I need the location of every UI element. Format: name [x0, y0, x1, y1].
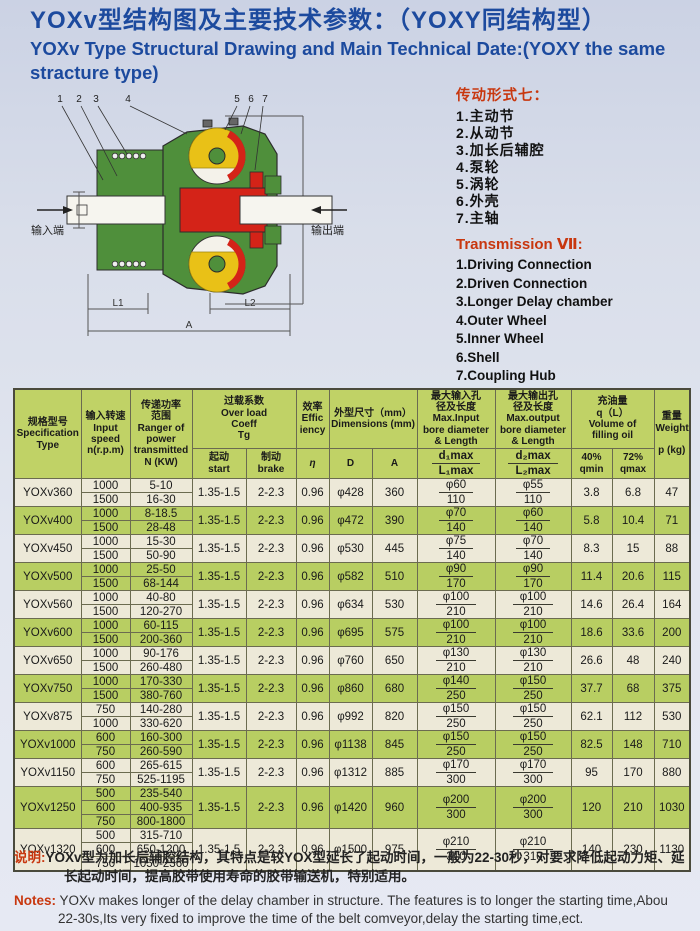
- table-cell: YOXv1150: [14, 759, 81, 787]
- table-cell: φ140250: [417, 675, 495, 703]
- table-cell: YOXv450: [14, 535, 81, 563]
- callout-7: 7: [262, 94, 268, 105]
- table-cell: 88: [654, 535, 690, 563]
- table-cell: φ150250: [495, 703, 571, 731]
- table-cell: 1500: [81, 689, 130, 703]
- table-cell: 47: [654, 479, 690, 507]
- table-row: YOXv1150600265-6151.35-1.52-2.30.96φ1312…: [14, 759, 690, 773]
- pump-core-top: [209, 148, 225, 164]
- col-header-a: A: [372, 449, 417, 479]
- table-cell: 112: [612, 703, 654, 731]
- col-header-overload: 过载系数 Over load Coeff Tg: [192, 389, 296, 449]
- table-cell: 750: [81, 703, 130, 717]
- page-header: YOXv型结构图及主要技术参数：（YOXY同结构型） YOXv Type Str…: [30, 6, 700, 85]
- table-cell: 50-90: [130, 549, 192, 563]
- table-cell: 380-760: [130, 689, 192, 703]
- table-cell: 0.96: [296, 507, 329, 535]
- callout-3: 3: [93, 94, 99, 105]
- table-cell: 260-590: [130, 745, 192, 759]
- table-cell: 115: [654, 563, 690, 591]
- table-cell: 1500: [81, 605, 130, 619]
- table-cell: 600: [81, 759, 130, 773]
- table-cell: 200: [654, 619, 690, 647]
- legend-item: 6.外壳: [456, 193, 696, 210]
- table-cell: 1.35-1.5: [192, 675, 246, 703]
- callout-2: 2: [76, 94, 82, 105]
- table-cell: φ1312: [329, 759, 372, 787]
- table-cell: 1000: [81, 647, 130, 661]
- hub-link-bottom: [250, 232, 263, 248]
- table-cell: 95: [571, 759, 612, 787]
- table-cell: φ90170: [495, 563, 571, 591]
- table-cell: 1030: [654, 787, 690, 829]
- note-en-label: Notes:: [14, 893, 56, 908]
- table-cell: 1500: [81, 633, 130, 647]
- table-cell: 164: [654, 591, 690, 619]
- output-end-label: 输出端: [311, 223, 344, 237]
- note-en-text: YOXv makes longer of the delay chamber i…: [58, 893, 668, 926]
- spec-table-body: YOXv36010005-101.35-1.52-2.30.96φ428360φ…: [14, 479, 690, 872]
- table-cell: φ55110: [495, 479, 571, 507]
- table-row: YOXv600100060-1151.35-1.52-2.30.96φ69557…: [14, 619, 690, 633]
- table-cell: 315-710: [130, 829, 192, 843]
- legend-item: 4.泵轮: [456, 159, 696, 176]
- table-row: YOXv450100015-301.35-1.52-2.30.96φ530445…: [14, 535, 690, 549]
- col-header-eta: η: [296, 449, 329, 479]
- table-cell: 2-2.3: [246, 675, 296, 703]
- table-cell: 5-10: [130, 479, 192, 493]
- pump-core-bottom: [209, 256, 225, 272]
- table-cell: φ100210: [417, 591, 495, 619]
- table-cell: 3.8: [571, 479, 612, 507]
- table-cell: φ75140: [417, 535, 495, 563]
- table-cell: φ150250: [495, 675, 571, 703]
- table-cell: φ100210: [495, 619, 571, 647]
- col-header-d1max: d₁maxL₁max: [417, 449, 495, 479]
- table-cell: 2-2.3: [246, 759, 296, 787]
- table-cell: 2-2.3: [246, 563, 296, 591]
- table-cell: φ428: [329, 479, 372, 507]
- table-cell: φ582: [329, 563, 372, 591]
- table-cell: 15: [612, 535, 654, 563]
- table-cell: 200-360: [130, 633, 192, 647]
- table-cell: 0.96: [296, 647, 329, 675]
- table-cell: 0.96: [296, 731, 329, 759]
- table-row: YOXv7501000170-3301.35-1.52-2.30.96φ8606…: [14, 675, 690, 689]
- table-cell: φ695: [329, 619, 372, 647]
- table-cell: 8-18.5: [130, 507, 192, 521]
- hub-link-top: [250, 172, 263, 188]
- spec-table: 规格型号 Specification Type 输入转速 Input speed…: [13, 388, 691, 872]
- table-cell: 40-80: [130, 591, 192, 605]
- table-cell: 530: [654, 703, 690, 731]
- table-cell: φ860: [329, 675, 372, 703]
- table-cell: 8.3: [571, 535, 612, 563]
- table-row: YOXv500100025-501.35-1.52-2.30.96φ582510…: [14, 563, 690, 577]
- table-cell: 28-48: [130, 521, 192, 535]
- table-cell: 2-2.3: [246, 703, 296, 731]
- table-cell: 1.35-1.5: [192, 759, 246, 787]
- table-cell: 18.6: [571, 619, 612, 647]
- table-cell: 1.35-1.5: [192, 563, 246, 591]
- legend-item: 1.主动节: [456, 108, 696, 125]
- input-end-label: 输入端: [31, 223, 64, 237]
- table-cell: φ150250: [417, 731, 495, 759]
- table-cell: 2-2.3: [246, 731, 296, 759]
- table-cell: φ760: [329, 647, 372, 675]
- table-cell: 25-50: [130, 563, 192, 577]
- table-cell: 2-2.3: [246, 507, 296, 535]
- table-cell: 500: [81, 787, 130, 801]
- table-cell: 33.6: [612, 619, 654, 647]
- legend-list-en: 1.Driving Connection 2.Driven Connection…: [456, 256, 696, 386]
- table-cell: 2-2.3: [246, 647, 296, 675]
- table-cell: 170-330: [130, 675, 192, 689]
- table-cell: 375: [654, 675, 690, 703]
- table-cell: YOXv1000: [14, 731, 81, 759]
- table-row: YOXv40010008-18.51.35-1.52-2.30.96φ47239…: [14, 507, 690, 521]
- col-header-qmin: 40% qmin: [571, 449, 612, 479]
- note-zh-label: 说明:: [14, 850, 46, 865]
- table-cell: 0.96: [296, 787, 329, 829]
- table-cell: φ200300: [417, 787, 495, 829]
- table-cell: 148: [612, 731, 654, 759]
- table-cell: 235-540: [130, 787, 192, 801]
- table-cell: 1.35-1.5: [192, 703, 246, 731]
- table-cell: 15-30: [130, 535, 192, 549]
- table-cell: 71: [654, 507, 690, 535]
- table-cell: 0.96: [296, 535, 329, 563]
- table-cell: 750: [81, 815, 130, 829]
- table-cell: 680: [372, 675, 417, 703]
- table-cell: 265-615: [130, 759, 192, 773]
- table-cell: 390: [372, 507, 417, 535]
- table-row: YOXv1000600160-3001.35-1.52-2.30.96φ1138…: [14, 731, 690, 745]
- col-header-dimensions: 外型尺寸（mm） Dimensions (mm): [329, 389, 417, 449]
- note-zh-text: YOXv型为加长后辅腔结构，其特点是较YOX型延长了起动时间，一般为22-30秒…: [46, 850, 685, 884]
- col-header-weight: 重量 Weight p (kg): [654, 389, 690, 479]
- legend-title-en: Transmission Ⅶ:: [456, 235, 696, 253]
- legend-title-zh: 传动形式七：: [456, 84, 696, 105]
- legend-item: 3.加长后辅腔: [456, 142, 696, 159]
- table-cell: 0.96: [296, 619, 329, 647]
- table-cell: YOXv650: [14, 647, 81, 675]
- table-row: YOXv1250500235-5401.35-1.52-2.30.96φ1420…: [14, 787, 690, 801]
- table-cell: 1000: [81, 563, 130, 577]
- table-cell: 600: [81, 801, 130, 815]
- table-cell: 240: [654, 647, 690, 675]
- legend-list-zh: 1.主动节 2.从动节 3.加长后辅腔 4.泵轮 5.涡轮 6.外壳 7.主轴: [456, 108, 696, 227]
- bolt-1: [203, 120, 212, 127]
- table-cell: YOXv560: [14, 591, 81, 619]
- table-cell: 1.35-1.5: [192, 619, 246, 647]
- table-cell: 160-300: [130, 731, 192, 745]
- table-cell: φ472: [329, 507, 372, 535]
- table-cell: 20.6: [612, 563, 654, 591]
- table-cell: φ130210: [495, 647, 571, 675]
- spec-table-head: 规格型号 Specification Type 输入转速 Input speed…: [14, 389, 690, 479]
- table-cell: 120: [571, 787, 612, 829]
- table-cell: 330-620: [130, 717, 192, 731]
- table-cell: φ90170: [417, 563, 495, 591]
- table-cell: φ70140: [495, 535, 571, 563]
- table-cell: 11.4: [571, 563, 612, 591]
- bearing-top: [265, 176, 281, 194]
- table-cell: 1500: [81, 493, 130, 507]
- table-cell: 26.4: [612, 591, 654, 619]
- table-cell: φ60140: [495, 507, 571, 535]
- table-cell: 2-2.3: [246, 787, 296, 829]
- table-cell: φ992: [329, 703, 372, 731]
- table-cell: 750: [81, 745, 130, 759]
- table-cell: φ530: [329, 535, 372, 563]
- table-cell: 530: [372, 591, 417, 619]
- table-cell: 6.8: [612, 479, 654, 507]
- table-cell: 710: [654, 731, 690, 759]
- notes-section: 说明:YOXv型为加长后辅腔结构，其特点是较YOX型延长了起动时间，一般为22-…: [14, 848, 690, 927]
- legend-item: 4.Outer Wheel: [456, 312, 696, 331]
- table-cell: φ200300: [495, 787, 571, 829]
- col-header-efficiency: 效率 Effic iency: [296, 389, 329, 449]
- bearing-bottom: [265, 226, 281, 244]
- table-cell: 1000: [81, 479, 130, 493]
- table-cell: 575: [372, 619, 417, 647]
- col-header-start: 起动 start: [192, 449, 246, 479]
- table-cell: 800-1800: [130, 815, 192, 829]
- table-cell: 845: [372, 731, 417, 759]
- table-cell: 1500: [81, 521, 130, 535]
- table-cell: 0.96: [296, 479, 329, 507]
- table-cell: YOXv750: [14, 675, 81, 703]
- table-cell: YOXv360: [14, 479, 81, 507]
- legend-item: 1.Driving Connection: [456, 256, 696, 275]
- table-cell: 0.96: [296, 759, 329, 787]
- table-cell: 1000: [81, 619, 130, 633]
- legend-item: 2.从动节: [456, 125, 696, 142]
- table-cell: 2-2.3: [246, 479, 296, 507]
- table-cell: 1.35-1.5: [192, 535, 246, 563]
- catalog-page: YOXv型结构图及主要技术参数：（YOXY同结构型） YOXv Type Str…: [0, 0, 700, 931]
- table-cell: 26.6: [571, 647, 612, 675]
- table-cell: 820: [372, 703, 417, 731]
- table-cell: 37.7: [571, 675, 612, 703]
- table-cell: 1500: [81, 577, 130, 591]
- col-header-max-input: 最大输入孔 径及长度 Max.Input bore diameter & Len…: [417, 389, 495, 449]
- table-row: YOXv650100090-1761.35-1.52-2.30.96φ76065…: [14, 647, 690, 661]
- table-cell: 14.6: [571, 591, 612, 619]
- legend-item: 2.Driven Connection: [456, 275, 696, 294]
- table-cell: 880: [654, 759, 690, 787]
- table-cell: 1.35-1.5: [192, 507, 246, 535]
- legend-item: 5.涡轮: [456, 176, 696, 193]
- table-cell: 500: [81, 829, 130, 843]
- table-cell: φ634: [329, 591, 372, 619]
- table-cell: 1000: [81, 591, 130, 605]
- col-header-power: 传递功率 范围 Ranger of power transmitted N (K…: [130, 389, 192, 479]
- parts-legend: 传动形式七： 1.主动节 2.从动节 3.加长后辅腔 4.泵轮 5.涡轮 6.外…: [456, 84, 696, 386]
- callout-5: 5: [234, 94, 240, 105]
- table-row: YOXv875750140-2801.35-1.52-2.30.96φ99282…: [14, 703, 690, 717]
- table-cell: 360: [372, 479, 417, 507]
- col-header-spec: 规格型号 Specification Type: [14, 389, 81, 479]
- col-header-max-output: 最大输出孔 径及长度 Max.output bore diameter & Le…: [495, 389, 571, 449]
- col-header-speed: 输入转速 Input speed n(r.p.m): [81, 389, 130, 479]
- table-cell: 885: [372, 759, 417, 787]
- dim-label-l2: L2: [244, 298, 256, 309]
- table-cell: 62.1: [571, 703, 612, 731]
- table-cell: 0.96: [296, 591, 329, 619]
- table-cell: 445: [372, 535, 417, 563]
- table-cell: 600: [81, 731, 130, 745]
- table-row: YOXv36010005-101.35-1.52-2.30.96φ428360φ…: [14, 479, 690, 493]
- table-cell: 525-1195: [130, 773, 192, 787]
- table-cell: 1.35-1.5: [192, 731, 246, 759]
- table-cell: 82.5: [571, 731, 612, 759]
- page-title-en: YOXv Type Structural Drawing and Main Te…: [30, 37, 700, 85]
- table-cell: 60-115: [130, 619, 192, 633]
- table-cell: φ170300: [495, 759, 571, 787]
- table-cell: 510: [372, 563, 417, 591]
- dim-label-l1: L1: [112, 298, 124, 309]
- table-cell: YOXv875: [14, 703, 81, 731]
- table-cell: 260-480: [130, 661, 192, 675]
- table-cell: 10.4: [612, 507, 654, 535]
- table-cell: 1.35-1.5: [192, 647, 246, 675]
- table-cell: 0.96: [296, 675, 329, 703]
- table-cell: 1.35-1.5: [192, 479, 246, 507]
- table-cell: φ1138: [329, 731, 372, 759]
- table-cell: φ130210: [417, 647, 495, 675]
- table-cell: 1000: [81, 675, 130, 689]
- table-cell: φ60110: [417, 479, 495, 507]
- table-cell: φ100210: [495, 591, 571, 619]
- table-cell: 400-935: [130, 801, 192, 815]
- table-cell: φ150250: [495, 731, 571, 759]
- col-header-qmax: 72% qmax: [612, 449, 654, 479]
- table-cell: YOXv400: [14, 507, 81, 535]
- table-cell: φ1420: [329, 787, 372, 829]
- table-cell: YOXv500: [14, 563, 81, 591]
- callout-1: 1: [57, 94, 63, 105]
- table-cell: 68: [612, 675, 654, 703]
- table-cell: 1500: [81, 661, 130, 675]
- table-cell: 1000: [81, 535, 130, 549]
- table-cell: 90-176: [130, 647, 192, 661]
- table-cell: 1000: [81, 507, 130, 521]
- structural-drawing: D L1 L2 A: [15, 88, 455, 368]
- legend-item: 6.Shell: [456, 349, 696, 368]
- note-zh: 说明:YOXv型为加长后辅腔结构，其特点是较YOX型延长了起动时间，一般为22-…: [14, 848, 690, 886]
- coupling-cross-section-svg: D L1 L2 A: [15, 88, 455, 368]
- table-cell: 2-2.3: [246, 619, 296, 647]
- callout-6: 6: [248, 94, 254, 105]
- table-cell: 1500: [81, 549, 130, 563]
- table-cell: φ70140: [417, 507, 495, 535]
- note-en: Notes: YOXv makes longer of the delay ch…: [14, 892, 690, 927]
- table-cell: YOXv1250: [14, 787, 81, 829]
- table-cell: 650: [372, 647, 417, 675]
- table-cell: φ170300: [417, 759, 495, 787]
- legend-item: 7.主轴: [456, 210, 696, 227]
- table-cell: 750: [81, 773, 130, 787]
- col-header-d2max: d₂maxL₂max: [495, 449, 571, 479]
- table-cell: 210: [612, 787, 654, 829]
- table-cell: 1.35-1.5: [192, 787, 246, 829]
- table-cell: φ100210: [417, 619, 495, 647]
- table-cell: 960: [372, 787, 417, 829]
- col-header-oil-volume: 充油量 q（L） Volume of filling oil: [571, 389, 654, 449]
- page-title-zh: YOXv型结构图及主要技术参数：（YOXY同结构型）: [30, 6, 700, 36]
- table-row: YOXv1320500315-7101.35-1.52-2.30.96φ1500…: [14, 829, 690, 843]
- dim-label-a: A: [186, 320, 193, 331]
- table-cell: 170: [612, 759, 654, 787]
- table-cell: 140-280: [130, 703, 192, 717]
- table-cell: 1000: [81, 717, 130, 731]
- legend-item: 5.Inner Wheel: [456, 330, 696, 349]
- table-cell: φ150250: [417, 703, 495, 731]
- table-cell: YOXv600: [14, 619, 81, 647]
- table-cell: 120-270: [130, 605, 192, 619]
- table-cell: 68-144: [130, 577, 192, 591]
- table-row: YOXv560100040-801.35-1.52-2.30.96φ634530…: [14, 591, 690, 605]
- legend-item: 3.Longer Delay chamber: [456, 293, 696, 312]
- legend-item: 7.Coupling Hub: [456, 367, 696, 386]
- table-cell: 16-30: [130, 493, 192, 507]
- table-cell: 5.8: [571, 507, 612, 535]
- callout-4: 4: [125, 94, 131, 105]
- table-cell: 0.96: [296, 703, 329, 731]
- col-header-brake: 制动 brake: [246, 449, 296, 479]
- table-cell: 1.35-1.5: [192, 591, 246, 619]
- table-cell: 48: [612, 647, 654, 675]
- table-cell: 0.96: [296, 563, 329, 591]
- table-cell: 2-2.3: [246, 591, 296, 619]
- col-header-d: D: [329, 449, 372, 479]
- table-cell: 2-2.3: [246, 535, 296, 563]
